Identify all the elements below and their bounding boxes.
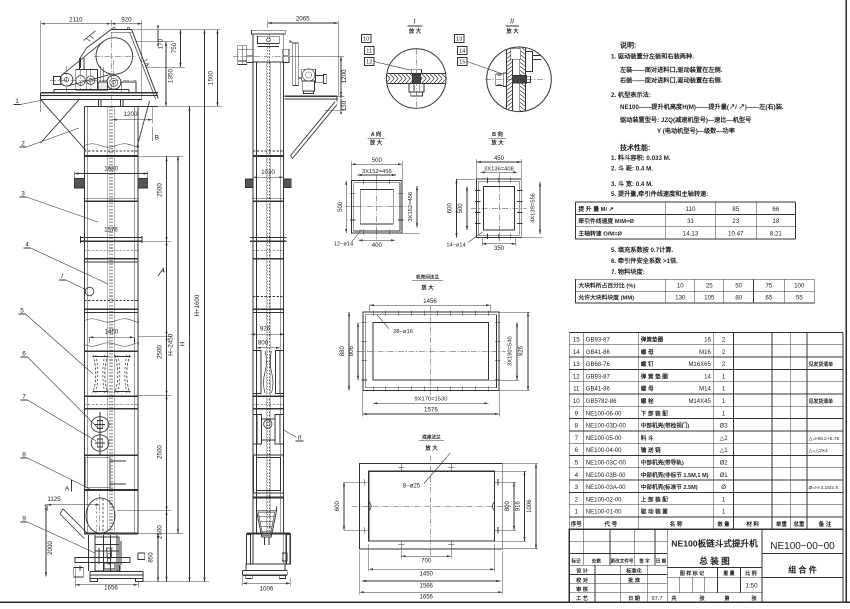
svg-text:1656: 1656 <box>104 585 118 592</box>
svg-text:校 对: 校 对 <box>576 576 589 584</box>
svg-text:12: 12 <box>573 373 580 380</box>
svg-text:下 部 装 配: 下 部 装 配 <box>641 409 668 417</box>
svg-text:NE100-03D-00: NE100-03D-00 <box>586 424 627 430</box>
svg-text:驱动装置型号: JZQ(减速机型号)—速比—机型号: 驱动装置型号: JZQ(减速机型号)—速比—机型号 <box>620 116 751 124</box>
svg-text:△2: △2 <box>720 436 729 442</box>
svg-text:1456: 1456 <box>423 298 437 305</box>
svg-text:放 大: 放 大 <box>424 444 438 452</box>
svg-text:97.7: 97.7 <box>651 596 662 602</box>
svg-text:共: 共 <box>671 594 677 602</box>
svg-text:11: 11 <box>573 386 580 393</box>
svg-text:张: 张 <box>699 594 705 602</box>
svg-text:880: 880 <box>340 346 346 357</box>
svg-text:B 向: B 向 <box>492 130 503 138</box>
svg-text:5. 提升量,牵引件线速度和主轴转速:: 5. 提升量,牵引件线速度和主轴转速: <box>611 190 708 198</box>
svg-text:△1: △1 <box>720 448 729 454</box>
svg-text:6: 6 <box>575 447 579 454</box>
svg-text:Ø3: Ø3 <box>720 424 729 430</box>
svg-text:H: H <box>180 342 187 346</box>
svg-text:弹簧垫圈: 弹簧垫圈 <box>641 336 664 344</box>
svg-text:2500: 2500 <box>157 445 164 459</box>
svg-text:NE100-03A-00: NE100-03A-00 <box>586 485 626 491</box>
svg-text:1680: 1680 <box>104 166 118 173</box>
svg-text:NE100−00−00: NE100−00−00 <box>770 541 835 552</box>
svg-text:105: 105 <box>704 295 715 302</box>
svg-text:800: 800 <box>258 339 269 346</box>
svg-text:1030: 1030 <box>261 169 275 176</box>
svg-text:料 斗: 料 斗 <box>641 434 654 442</box>
svg-text:920: 920 <box>121 16 132 23</box>
svg-text:签 字: 签 字 <box>638 557 650 564</box>
svg-text:500: 500 <box>338 201 344 212</box>
svg-text:中部机壳(标准节 2.5M): 中部机壳(标准节 2.5M) <box>641 483 698 491</box>
svg-text:6. 牵引件安全系数 >1倍.: 6. 牵引件安全系数 >1倍. <box>611 257 678 265</box>
svg-text:A 向: A 向 <box>371 130 382 138</box>
svg-text:14: 14 <box>704 374 711 380</box>
svg-text:GB41-86: GB41-86 <box>586 387 611 393</box>
svg-text:见发货清单: 见发货清单 <box>809 361 834 368</box>
svg-text:Ø: Ø <box>721 485 726 491</box>
svg-text:底座法兰: 底座法兰 <box>422 433 441 440</box>
svg-text:中部机壳(非标节 1.5M,1 M): 中部机壳(非标节 1.5M,1 M) <box>641 471 709 479</box>
svg-text:大块料所占百分比 (%): 大块料所占百分比 (%) <box>578 282 635 290</box>
svg-text:1. 料斗容积: 0.033 M.: 1. 料斗容积: 0.033 M. <box>611 154 671 162</box>
svg-text:总 装 图: 总 装 图 <box>699 555 730 566</box>
svg-text:I: I <box>61 273 63 280</box>
svg-text:名 称: 名 称 <box>670 520 683 528</box>
svg-text:3X152=456: 3X152=456 <box>408 192 414 222</box>
svg-text:△=△2X4: △=△2X4 <box>809 448 828 454</box>
svg-text:弹 簧 垫 圈: 弹 簧 垫 圈 <box>641 372 668 380</box>
svg-text:700: 700 <box>421 558 432 564</box>
svg-text:3. 斗 宽: 0.4 M.: 3. 斗 宽: 0.4 M. <box>611 180 653 188</box>
svg-text:螺 母: 螺 母 <box>641 348 654 356</box>
svg-text:螺 母: 螺 母 <box>641 385 654 393</box>
svg-text:放 大: 放 大 <box>490 139 504 147</box>
svg-text:NE100-04-00: NE100-04-00 <box>586 448 622 454</box>
svg-text:1: 1 <box>15 98 19 105</box>
svg-text:Ø2: Ø2 <box>720 461 729 467</box>
svg-text:15: 15 <box>573 337 580 344</box>
svg-text:5. 填充系数按 0.7计算.: 5. 填充系数按 0.7计算. <box>611 246 674 254</box>
svg-text:GB5782-86: GB5782-86 <box>586 399 617 405</box>
svg-text:左装——面对进料口,驱动装置在左侧.: 左装——面对进料口,驱动装置在左侧. <box>619 66 723 74</box>
svg-text:100: 100 <box>794 283 805 290</box>
svg-text:23: 23 <box>732 218 739 225</box>
svg-text:2065: 2065 <box>296 16 310 23</box>
svg-text:10.47: 10.47 <box>728 230 744 237</box>
svg-text:工 艺: 工 艺 <box>576 594 588 602</box>
svg-text:4: 4 <box>25 242 29 249</box>
svg-text:右装——面对进料口,驱动装置在右侧.: 右装——面对进料口,驱动装置在右侧. <box>620 77 723 85</box>
svg-text:800: 800 <box>505 500 511 511</box>
svg-text:1200: 1200 <box>341 69 348 83</box>
svg-text:日 期: 日 期 <box>628 594 640 602</box>
svg-text:技术性能:: 技术性能: <box>620 143 650 152</box>
svg-text:M16: M16 <box>699 350 711 356</box>
svg-text:8−ø25: 8−ø25 <box>403 483 421 489</box>
svg-text:Ø=H-3.15/2.5: Ø=H-3.15/2.5 <box>809 485 839 491</box>
svg-text:M14: M14 <box>699 387 711 393</box>
svg-text:85: 85 <box>732 206 739 213</box>
svg-text:批 准: 批 准 <box>628 576 641 584</box>
svg-text:7: 7 <box>22 394 26 401</box>
svg-text:80: 80 <box>735 295 742 302</box>
svg-text:1006: 1006 <box>260 586 274 593</box>
svg-text:审 核: 审 核 <box>576 585 589 593</box>
svg-text:15: 15 <box>459 60 465 66</box>
svg-text:13: 13 <box>456 37 462 43</box>
svg-text:2. 机型表示法:: 2. 机型表示法: <box>611 91 651 99</box>
svg-text:NE100——提升机高度H(M)——提升量(↗/ ↗)——左: NE100——提升机高度H(M)——提升量(↗/ ↗)——左(右)装. <box>620 103 784 111</box>
svg-text:926: 926 <box>518 346 524 357</box>
svg-text:驱 动 装 置: 驱 动 装 置 <box>641 508 668 516</box>
svg-text:2110: 2110 <box>69 16 83 23</box>
svg-text:2: 2 <box>21 141 25 148</box>
svg-text:1200: 1200 <box>123 111 138 118</box>
svg-text:7. 物料块度:: 7. 物料块度: <box>611 268 645 276</box>
svg-text:55: 55 <box>796 295 803 302</box>
svg-text:比 例: 比 例 <box>745 570 756 577</box>
svg-text:第: 第 <box>724 594 730 602</box>
svg-text:2500: 2500 <box>157 183 164 197</box>
svg-text:7: 7 <box>575 435 579 442</box>
svg-text:1350: 1350 <box>168 68 175 83</box>
svg-text:600: 600 <box>448 203 454 214</box>
svg-text:NE100板链斗式提升机: NE100板链斗式提升机 <box>671 537 758 548</box>
svg-text:850: 850 <box>148 552 155 563</box>
svg-text:1576: 1576 <box>424 406 438 413</box>
svg-text:牵引件线速度 M/M=Ø: 牵引件线速度 M/M=Ø <box>578 217 634 225</box>
svg-text:110: 110 <box>686 206 696 213</box>
svg-text:说明:: 说明: <box>620 40 636 49</box>
svg-text:M14X45: M14X45 <box>688 399 711 405</box>
svg-text:12: 12 <box>366 60 372 66</box>
svg-text:NE100-03C-00: NE100-03C-00 <box>586 461 627 467</box>
svg-text:1:50: 1:50 <box>745 583 758 590</box>
svg-text:序号: 序号 <box>570 520 582 528</box>
svg-text:1006: 1006 <box>527 499 533 513</box>
svg-text:1: 1 <box>575 509 579 516</box>
svg-text:1450: 1450 <box>420 572 434 578</box>
svg-text:65: 65 <box>765 295 772 302</box>
svg-text:GB68-76: GB68-76 <box>586 362 611 368</box>
svg-text:5: 5 <box>575 460 579 467</box>
svg-text:350: 350 <box>494 246 505 252</box>
svg-text:3X136=408: 3X136=408 <box>484 166 514 172</box>
svg-text:6: 6 <box>22 351 26 358</box>
svg-text:放 大: 放 大 <box>505 27 519 35</box>
svg-text:Ø1: Ø1 <box>720 473 729 479</box>
svg-text:25: 25 <box>706 283 713 290</box>
svg-text:见发货清单: 见发货清单 <box>809 398 834 405</box>
svg-text:4X139=556: 4X139=556 <box>531 193 537 223</box>
svg-text:GB41-86: GB41-86 <box>586 350 611 356</box>
svg-text:28−ø16: 28−ø16 <box>393 329 413 335</box>
svg-text:数 量: 数 量 <box>718 520 731 528</box>
svg-text:750: 750 <box>171 42 178 53</box>
svg-text:材 料: 材 料 <box>746 520 759 528</box>
svg-text:2000: 2000 <box>47 541 54 555</box>
svg-text:66: 66 <box>772 206 779 213</box>
svg-text:更改文件号: 更改文件号 <box>611 557 634 564</box>
svg-text:螺 栓: 螺 栓 <box>641 397 654 405</box>
svg-text:500: 500 <box>458 203 464 214</box>
svg-text:450: 450 <box>494 156 505 162</box>
svg-text:中部机壳(带导轨): 中部机壳(带导轨) <box>641 459 684 467</box>
svg-text:II: II <box>510 19 514 26</box>
svg-text:M16X65: M16X65 <box>688 362 711 368</box>
svg-text:75: 75 <box>765 283 772 290</box>
svg-text:3X180=540: 3X180=540 <box>507 336 513 366</box>
svg-text:图 样 标 记: 图 样 标 记 <box>680 570 704 577</box>
svg-text:400: 400 <box>372 243 383 249</box>
svg-text:2500: 2500 <box>157 345 164 359</box>
svg-text:1566: 1566 <box>420 583 434 589</box>
svg-text:中部机壳(带检视门): 中部机壳(带检视门) <box>641 422 690 430</box>
svg-text:提 升 量 M/ ↗: 提 升 量 M/ ↗ <box>578 205 613 213</box>
svg-text:130: 130 <box>341 100 348 111</box>
svg-text:张: 张 <box>751 594 757 602</box>
svg-text:9: 9 <box>575 410 579 417</box>
svg-text:GB93-87: GB93-87 <box>586 374 611 380</box>
svg-text:12−ø14: 12−ø14 <box>334 241 353 247</box>
svg-text:H+1600: H+1600 <box>194 294 201 316</box>
svg-text:3: 3 <box>575 484 579 491</box>
svg-text:8: 8 <box>575 423 579 430</box>
svg-text:806: 806 <box>349 346 355 357</box>
svg-text:10: 10 <box>573 398 580 405</box>
svg-text:螺 钉: 螺 钉 <box>641 360 654 368</box>
svg-text:标准化: 标准化 <box>625 567 642 575</box>
svg-text:B: B <box>155 135 159 142</box>
svg-text:1125: 1125 <box>47 496 61 503</box>
svg-text:2. 斗 距: 0.4 M.: 2. 斗 距: 0.4 M. <box>611 164 653 172</box>
svg-text:18: 18 <box>772 218 779 225</box>
svg-text:重 量: 重 量 <box>723 570 734 577</box>
svg-text:NE100-02-00: NE100-02-00 <box>586 497 622 503</box>
svg-text:3X152=456: 3X152=456 <box>362 169 392 175</box>
svg-text:日 期: 日 期 <box>656 557 667 564</box>
svg-text:单重: 单重 <box>776 520 787 528</box>
svg-text:10: 10 <box>677 283 684 290</box>
svg-text:600: 600 <box>335 500 341 511</box>
svg-text:代 号: 代 号 <box>603 520 617 528</box>
svg-text:NE100-06-00: NE100-06-00 <box>586 411 622 417</box>
svg-text:2500: 2500 <box>157 525 164 539</box>
svg-text:Y (电动机型号)—级数—功率: Y (电动机型号)—级数—功率 <box>657 127 736 135</box>
svg-text:NE100-05-00: NE100-05-00 <box>586 436 622 442</box>
svg-text:1450: 1450 <box>105 328 119 335</box>
svg-text:31: 31 <box>687 218 694 225</box>
svg-text:16: 16 <box>704 338 711 344</box>
svg-text:2: 2 <box>575 496 579 503</box>
svg-text:14.13: 14.13 <box>683 230 699 237</box>
svg-text:放 大: 放 大 <box>408 27 422 35</box>
svg-text:916: 916 <box>515 500 521 511</box>
svg-text:14: 14 <box>573 349 580 356</box>
svg-text:1500: 1500 <box>208 70 215 85</box>
svg-text:50: 50 <box>735 283 742 290</box>
svg-text:9: 9 <box>22 516 26 523</box>
svg-text:NE100-03B-00: NE100-03B-00 <box>586 473 626 479</box>
svg-text:组 合 件: 组 合 件 <box>788 565 816 575</box>
svg-text:1576: 1576 <box>104 227 118 234</box>
svg-text:机壳间法兰: 机壳间法兰 <box>416 273 439 280</box>
svg-text:9X170=1530: 9X170=1530 <box>414 397 447 403</box>
svg-text:设 计: 设 计 <box>576 567 589 575</box>
svg-text:上 部 装 配: 上 部 装 配 <box>641 495 668 503</box>
svg-text:500: 500 <box>372 158 383 164</box>
svg-text:GB93-87: GB93-87 <box>586 338 611 344</box>
svg-text:130: 130 <box>675 295 686 302</box>
svg-text:NE100-01-00: NE100-01-00 <box>586 510 622 516</box>
svg-text:926: 926 <box>260 326 271 333</box>
svg-text:H−2450: H−2450 <box>168 333 175 355</box>
svg-text:总重: 总重 <box>794 520 805 528</box>
svg-text:允许大块料块度 (MM): 允许大块料块度 (MM) <box>577 294 634 302</box>
svg-text:△=H/0.2+5.75: △=H/0.2+5.75 <box>809 436 840 442</box>
svg-text:10: 10 <box>363 37 369 43</box>
svg-text:放 大: 放 大 <box>369 139 383 147</box>
svg-text:11: 11 <box>366 49 372 55</box>
svg-text:170: 170 <box>158 38 165 49</box>
svg-text:1656: 1656 <box>420 595 434 601</box>
svg-text:13: 13 <box>573 361 580 368</box>
svg-text:II: II <box>298 435 302 442</box>
svg-text:3: 3 <box>21 191 25 198</box>
svg-text:处数: 处数 <box>591 557 602 564</box>
svg-text:5: 5 <box>20 308 24 315</box>
svg-text:14−ø14: 14−ø14 <box>446 242 465 248</box>
svg-text:8: 8 <box>22 452 26 459</box>
svg-text:输 送 链: 输 送 链 <box>641 446 661 454</box>
svg-text:8.21: 8.21 <box>770 230 783 237</box>
svg-text:A: A <box>65 486 70 493</box>
svg-text:I: I <box>414 19 416 26</box>
svg-text:4: 4 <box>575 472 579 479</box>
svg-text:备 注: 备 注 <box>818 520 832 528</box>
svg-text:1. 驱动装置分左装和右装两种.: 1. 驱动装置分左装和右装两种. <box>611 53 694 61</box>
svg-text:14: 14 <box>459 49 465 55</box>
svg-text:放 大: 放 大 <box>420 283 434 291</box>
svg-text:标记: 标记 <box>570 557 581 564</box>
svg-text:主轴转速 O/M=Ø: 主轴转速 O/M=Ø <box>578 229 622 237</box>
